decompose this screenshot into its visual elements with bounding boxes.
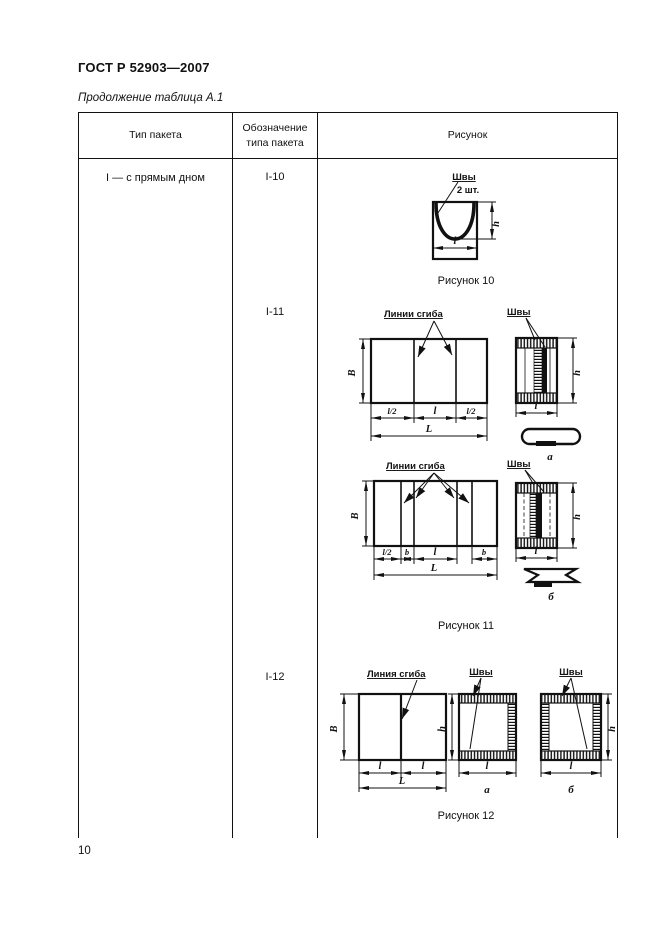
dim-l-label: l xyxy=(535,546,538,557)
tube-outline xyxy=(516,338,557,403)
dim-h-label: h xyxy=(572,370,583,376)
dim-l-label: l xyxy=(434,547,437,558)
dimension-B xyxy=(340,694,359,760)
table-header-row: Тип пакета Обозначение типа пакета Рисун… xyxy=(79,113,617,159)
dim-b-label: b xyxy=(482,547,486,557)
variant-b-label: б xyxy=(548,591,554,603)
dim-l-label: l xyxy=(486,761,489,772)
bag-b-outline xyxy=(541,694,601,760)
header-figure: Рисунок xyxy=(318,113,617,158)
dimension-B-b xyxy=(362,481,374,546)
seams-label: Швы xyxy=(452,172,476,183)
dim-L-label: L xyxy=(430,563,437,574)
table-body-row: I — с прямым дном I-10 I-11 I-12 Швы 2 ш… xyxy=(79,159,617,838)
dim-h-label: h xyxy=(607,726,617,732)
flattened-tube-b xyxy=(524,569,578,587)
dim-half-l-label: l/2 xyxy=(388,406,398,416)
variant-a-label: а xyxy=(484,784,490,796)
table-continuation-caption: Продолжение таблица А.1 xyxy=(78,92,223,104)
designation-i10: I-10 xyxy=(233,171,317,183)
dim-B-label: В xyxy=(329,725,340,733)
blank-outline xyxy=(371,339,487,403)
document-number: ГОСТ Р 52903—2007 xyxy=(78,60,210,75)
seams-qty-label: 2 шт. xyxy=(457,185,479,196)
dim-half-l-label: l/2 xyxy=(383,547,393,557)
dim-l-label: l xyxy=(379,761,382,772)
blank-outline xyxy=(359,694,446,760)
designation-i12: I-12 xyxy=(233,671,317,683)
dim-h-label: h xyxy=(491,221,502,227)
figure-10-drawing: Швы 2 шт. h xyxy=(398,166,578,291)
cell-package-type: I — с прямым дном xyxy=(79,159,233,838)
cell-designations: I-10 I-11 I-12 xyxy=(233,159,318,838)
seams-label: Швы xyxy=(559,667,583,678)
page-number: 10 xyxy=(78,845,91,857)
gusseted-tube-outline xyxy=(516,483,557,548)
dim-h-label: h xyxy=(572,514,583,520)
dim-B-label: В xyxy=(350,512,361,520)
fold-lines-label: Линии сгиба xyxy=(386,461,446,472)
dim-L-label: L xyxy=(398,776,405,787)
figure-12-drawing: Линия сгиба В xyxy=(329,661,617,826)
dim-l-label: l xyxy=(434,406,437,417)
table-a1: Тип пакета Обозначение типа пакета Рисун… xyxy=(78,112,618,838)
seams-label: Швы xyxy=(469,667,493,678)
bag-a-outline xyxy=(459,694,516,760)
designation-i11: I-11 xyxy=(233,306,317,318)
seams-label: Швы xyxy=(507,307,531,318)
dim-b-label: b xyxy=(405,547,409,557)
dim-l-label: l xyxy=(535,401,538,412)
gost-document-page: ГОСТ Р 52903—2007 Продолжение таблица А.… xyxy=(0,0,661,936)
header-package-type: Тип пакета xyxy=(79,113,233,158)
package-type-label: I — с прямым дном xyxy=(79,172,232,184)
header-designation: Обозначение типа пакета xyxy=(233,113,318,158)
dimension-h-a xyxy=(448,694,459,760)
seams-label: Швы xyxy=(507,459,531,470)
dim-l-label: l xyxy=(454,236,457,247)
dim-h-label: h xyxy=(437,726,448,732)
dim-l-label: l xyxy=(570,761,573,772)
figure-11-caption: Рисунок 11 xyxy=(438,620,494,632)
variant-b-label: б xyxy=(568,784,574,796)
figure-11-drawing: Линии сгиба В xyxy=(334,301,619,636)
fold-line-label: Линия сгиба xyxy=(367,669,426,680)
figure-10-caption: Рисунок 10 xyxy=(438,275,495,287)
seam-leaders-b xyxy=(562,678,587,749)
gusseted-blank-outline xyxy=(374,481,497,546)
dim-L-label: L xyxy=(425,424,432,435)
cell-figures: Швы 2 шт. h xyxy=(318,159,617,838)
fold-lines-label: Линии сгиба xyxy=(384,309,444,320)
dimension-B xyxy=(359,339,371,403)
seam-leaders-a xyxy=(470,678,481,749)
dim-l-label: l xyxy=(422,761,425,772)
figure-12-caption: Рисунок 12 xyxy=(438,810,495,822)
flattened-tube-a xyxy=(522,429,580,446)
variant-a-label: а xyxy=(547,451,553,463)
dim-B-label: В xyxy=(347,369,358,377)
fold-line-leader xyxy=(402,680,417,719)
leader-line xyxy=(436,182,458,216)
dim-half-l-label: l/2 xyxy=(467,406,477,416)
